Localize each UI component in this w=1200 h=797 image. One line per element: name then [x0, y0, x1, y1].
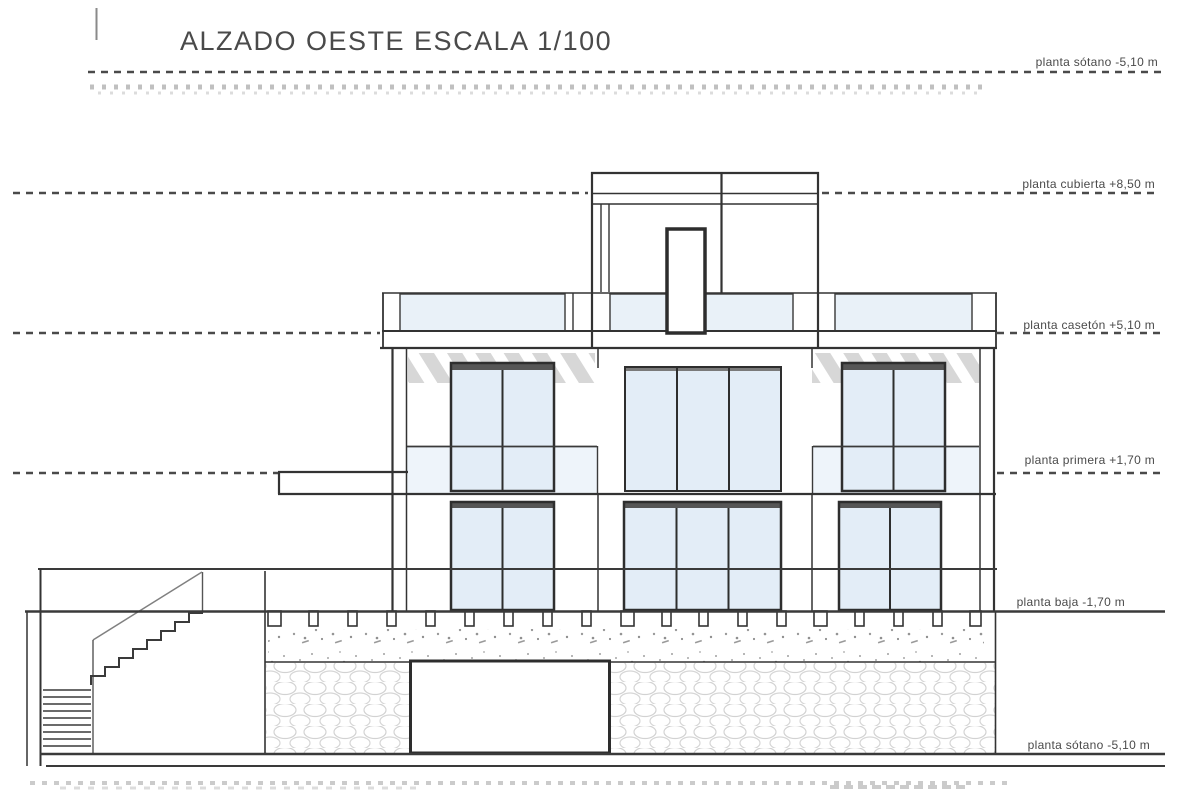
top-hatch-band [90, 87, 990, 93]
level-label-primera: planta primera +1,70 m [1025, 453, 1155, 467]
level-label-caseton: planta casetón +5,10 m [1023, 318, 1155, 332]
bottom-hatch-band [30, 783, 1010, 788]
window-baja-center [624, 502, 781, 610]
window-baja-left [451, 502, 554, 610]
elevation-drawing: ALZADO OESTE ESCALA 1/100 [0, 0, 1200, 797]
elevation-sheet: ALZADO OESTE ESCALA 1/100 [0, 0, 1200, 797]
window-baja-right [839, 502, 941, 610]
title-block: ALZADO OESTE ESCALA 1/100 [97, 8, 613, 56]
gravel-bed-right [610, 663, 996, 753]
level-label-baja: planta baja -1,70 m [1017, 595, 1125, 609]
parapet-glass-panel [610, 294, 667, 331]
page-title: ALZADO OESTE ESCALA 1/100 [180, 26, 612, 56]
basement-pool [411, 661, 610, 753]
level-labels: planta sótano -5,10 m planta cubierta +8… [1017, 55, 1158, 752]
window-primera-left [451, 363, 554, 491]
gravel-bed-left [266, 663, 410, 753]
parapet-glass-panel [400, 294, 565, 331]
roof-parapet [380, 229, 997, 348]
stair-lower-flight [43, 690, 91, 746]
parapet-glass-panel [835, 294, 972, 331]
stair-steps [91, 613, 203, 685]
level-label-sotano-upper: planta sótano -5,10 m [1036, 55, 1158, 69]
vegetation-stipple [268, 629, 984, 662]
caseton-door [667, 229, 705, 333]
window-primera-center [625, 367, 781, 491]
level-label-sotano: planta sótano -5,10 m [1028, 738, 1150, 752]
parapet-glass-panel [705, 294, 793, 331]
stair-handrail [93, 572, 202, 640]
level-label-cubierta: planta cubierta +8,50 m [1022, 177, 1155, 191]
window-primera-right [842, 363, 945, 491]
foundation-piles [268, 611, 981, 626]
exterior-stairs [27, 569, 203, 766]
